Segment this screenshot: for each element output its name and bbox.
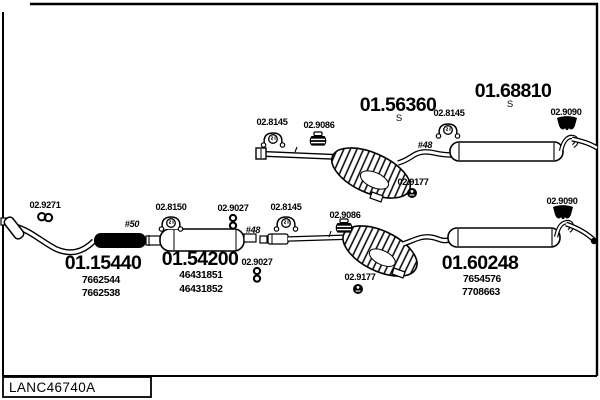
washer-stack-icon <box>254 268 260 282</box>
clamp-icon <box>261 133 285 147</box>
rubber-mount-icon <box>553 205 573 219</box>
oem-number: 46431852 <box>179 284 223 295</box>
top-tail-pipe <box>561 137 597 151</box>
diagram-code: LANC46740A <box>9 380 96 395</box>
fitting-code: 02.9271 <box>29 200 60 210</box>
oem-number: 7708663 <box>462 287 501 298</box>
exhaust-diagram: 01.56360 S 01.68810 S 01.15440 7662544 7… <box>0 0 600 400</box>
clamp-icon <box>436 124 460 138</box>
drawing-border <box>3 4 597 376</box>
exhaust-catalog-page: 01.56360 S 01.68810 S 01.15440 7662544 7… <box>0 0 600 400</box>
fitting-code: 02.8150 <box>155 202 186 212</box>
fitting-code: 02.9090 <box>550 107 581 117</box>
assembly-variant: S <box>507 99 513 110</box>
top-connecting-pipe <box>398 152 452 163</box>
bottom-connecting-pipe <box>403 237 452 244</box>
washer-stack-icon <box>230 215 236 229</box>
top-rear-silencer <box>450 142 563 161</box>
top-inlet-pipe <box>256 147 338 159</box>
fitting-code: 02.9027 <box>241 257 272 267</box>
bottom-tail-pipe <box>556 222 597 244</box>
diameter-label: #50 <box>125 219 140 229</box>
fitting-code: 02.9090 <box>546 196 577 206</box>
oem-number: 7662544 <box>82 275 121 286</box>
grommet-hanger-icon <box>407 188 417 198</box>
assembly-code: 01.54200 <box>162 248 239 270</box>
oem-number: 46431851 <box>179 270 223 281</box>
diameter-label: #48 <box>418 140 433 150</box>
rubber-mount-icon <box>557 116 577 130</box>
assembly-code: 01.15440 <box>65 252 142 274</box>
fitting-code: 02.9086 <box>329 210 360 220</box>
oem-number: 7654576 <box>463 274 502 285</box>
fitting-code: 02.9086 <box>303 120 334 130</box>
double-clamp-icon <box>38 213 52 221</box>
oem-number: 7662538 <box>82 288 121 299</box>
fitting-code: 02.8145 <box>433 108 464 118</box>
clamp-icon <box>274 217 298 231</box>
fitting-code: 02.8145 <box>270 202 301 212</box>
tailpipe-tip <box>591 238 597 244</box>
diameter-label: #48 <box>246 225 261 235</box>
rubber-hanger-icon <box>336 219 353 233</box>
flex-pipe-section <box>94 233 146 248</box>
bottom-rear-silencer <box>448 228 560 247</box>
grommet-hanger-icon <box>353 284 363 294</box>
flanged-sleeve <box>268 234 288 244</box>
assembly-code: 01.68810 <box>475 80 552 102</box>
assembly-variant: S <box>396 113 402 124</box>
fitting-code: 02.8145 <box>256 117 287 127</box>
fitting-code: 02.9177 <box>397 177 428 187</box>
assembly-code: 01.60248 <box>442 252 519 274</box>
outlet-joint-square <box>260 236 267 243</box>
fitting-code: 02.9027 <box>217 203 248 213</box>
footer-code-box: LANC46740A <box>3 377 151 397</box>
rubber-hanger-icon <box>310 132 327 146</box>
fitting-code: 02.9177 <box>344 272 375 282</box>
